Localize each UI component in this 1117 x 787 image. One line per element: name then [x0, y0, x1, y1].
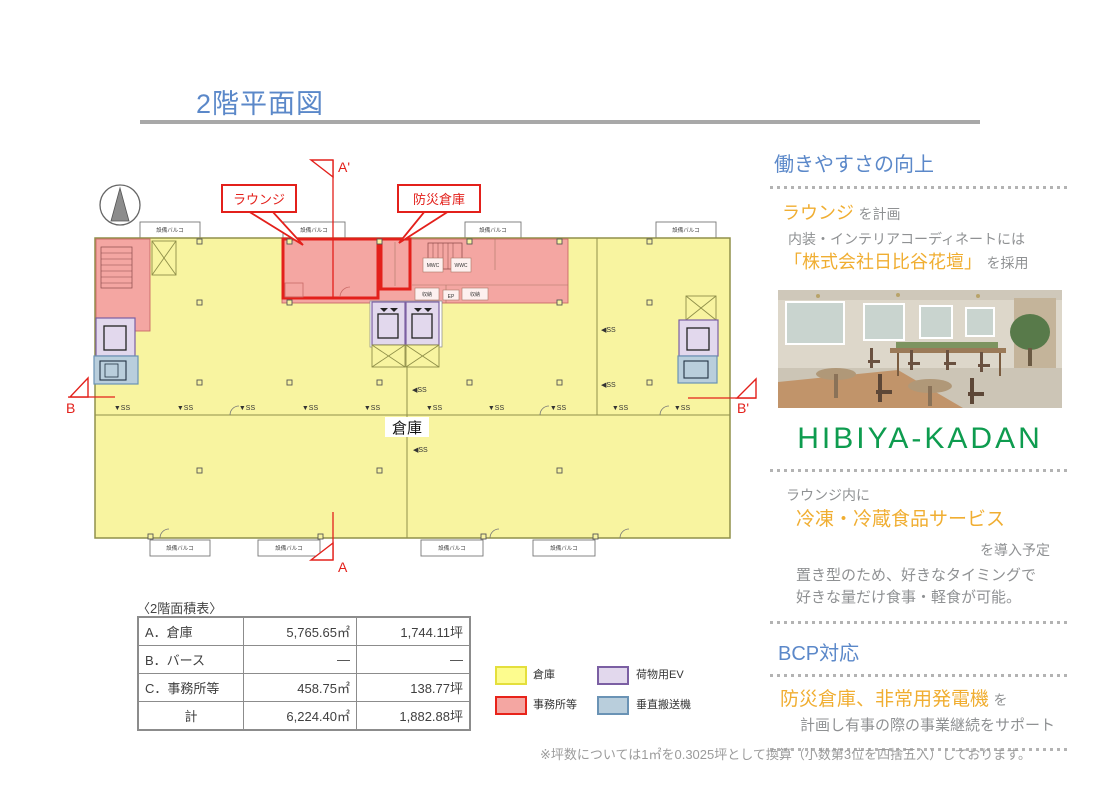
slide-page: 2階平面図 設備バルコ 設備バルコ 設備バルコ 設備バルコ	[0, 0, 1117, 787]
svg-text:▼SS: ▼SS	[488, 405, 505, 412]
tsubo-footnote: ※坪数については1㎡を0.3025坪として換算（小数第3位を四捨五入）しておりま…	[540, 744, 1080, 763]
legend-label: 荷物用EV	[636, 666, 684, 685]
svg-text:◀SS: ◀SS	[601, 327, 616, 334]
svg-text:▼SS: ▼SS	[302, 405, 319, 412]
bcp-line1: 防災倉庫、非常用発電機 を	[780, 687, 1070, 713]
legend-swatch-warehouse	[495, 666, 527, 685]
service-desc-line2: 好きな量だけ食事・軽食が可能。	[796, 588, 1070, 608]
service-desc-line1: 置き型のため、好きなタイミングで	[796, 566, 1070, 586]
hibiya-kadan-logo: HIBIYA-KADAN	[778, 422, 1062, 456]
svg-text:▼SS: ▼SS	[239, 405, 256, 412]
svg-text:収納: 収納	[470, 291, 480, 298]
legend-label: 事務所等	[533, 696, 577, 715]
svg-text:設備バルコ: 設備バルコ	[156, 226, 183, 234]
sidebar: 働きやすさの向上 ラウンジ を計画 内装・インテリアコーディネートには 「株式会…	[770, 148, 1070, 751]
section-marker-b: B	[66, 400, 75, 416]
svg-text:設備バルコ: 設備バルコ	[166, 544, 193, 552]
svg-text:▼SS: ▼SS	[114, 405, 131, 412]
lounge-photo	[778, 290, 1062, 408]
lounge-plan-line: ラウンジ を計画	[782, 201, 1070, 226]
svg-text:▼SS: ▼SS	[177, 405, 194, 412]
introduce-plan-line: を導入予定	[770, 541, 1050, 560]
svg-text:倉庫: 倉庫	[392, 420, 422, 437]
cargo-elevators-center	[370, 301, 442, 347]
warehouse-label: 倉庫	[385, 417, 429, 437]
svg-text:EP: EP	[448, 294, 455, 300]
table-row: C．事務所等 458.75㎡ 138.77坪	[138, 674, 470, 702]
svg-text:◀SS: ◀SS	[601, 382, 616, 389]
legend-swatch-ev	[597, 666, 629, 685]
balcony-labels-top: 設備バルコ 設備バルコ 設備バルコ 設備バルコ	[156, 226, 699, 234]
svg-text:設備バルコ: 設備バルコ	[300, 226, 327, 234]
hibiya-adoption-line: 「株式会社日比谷花壇」 を採用	[784, 250, 1070, 275]
north-compass-icon	[100, 185, 140, 225]
svg-text:設備バルコ: 設備バルコ	[672, 226, 699, 234]
hatch-box-topleft	[152, 241, 176, 275]
interior-line: 内装・インテリアコーディネートには	[788, 230, 1070, 249]
bcp-line2: 計画し有事の際の事業継続をサポート	[800, 716, 1070, 736]
svg-text:MWC: MWC	[427, 263, 440, 269]
section-marker-a-prime: A'	[338, 159, 350, 175]
area-table: A．倉庫 5,765.65㎡ 1,744.11坪 B．バース ― ― C．事務所…	[137, 616, 471, 731]
dotted-separator	[770, 621, 1070, 624]
balcony-boxes-bottom	[150, 540, 595, 556]
vertical-conveyor-right	[678, 356, 717, 383]
food-service-highlight: 冷凍・冷蔵食品サービス	[796, 507, 1070, 533]
vertical-conveyor-left	[94, 356, 138, 384]
sidebar-heading-bcp: BCP対応	[778, 637, 1070, 666]
svg-text:収納: 収納	[422, 291, 432, 298]
title-underline	[140, 120, 980, 124]
page-title: 2階平面図	[196, 82, 324, 121]
svg-text:◀SS: ◀SS	[412, 387, 427, 394]
svg-text:設備バルコ: 設備バルコ	[275, 544, 302, 552]
disaster-storage-room	[381, 239, 410, 289]
legend-swatch-conveyor	[597, 696, 629, 715]
svg-text:設備バルコ: 設備バルコ	[438, 544, 465, 552]
stairwell-block	[96, 239, 150, 331]
svg-text:設備バルコ: 設備バルコ	[479, 226, 506, 234]
table-row-total: 計 6,224.40㎡ 1,882.88坪	[138, 702, 470, 731]
dotted-separator	[770, 469, 1070, 472]
legend-swatch-office	[495, 696, 527, 715]
cargo-elevator-left	[96, 318, 135, 356]
svg-text:設備バルコ: 設備バルコ	[550, 544, 577, 552]
svg-text:▼SS: ▼SS	[426, 405, 443, 412]
svg-text:防災倉庫: 防災倉庫	[413, 192, 465, 207]
lounge-callout: ラウンジ	[222, 185, 303, 245]
section-marker-a: A	[338, 559, 348, 575]
lounge-service-line1: ラウンジ内に	[786, 486, 1070, 505]
svg-text:◀SS: ◀SS	[413, 447, 428, 454]
svg-text:WWC: WWC	[454, 263, 467, 269]
lounge-room	[283, 239, 378, 298]
svg-text:▼SS: ▼SS	[612, 405, 629, 412]
table-row: A．倉庫 5,765.65㎡ 1,744.11坪	[138, 617, 470, 646]
table-row: B．バース ― ―	[138, 646, 470, 674]
dotted-separator	[770, 674, 1070, 677]
sidebar-heading-comfort: 働きやすさの向上	[774, 148, 1070, 177]
cargo-elevator-right	[679, 320, 718, 356]
area-table-caption: 〈2階面積表〉	[137, 598, 222, 617]
hatch-box-right	[686, 296, 716, 320]
legend-label: 倉庫	[533, 666, 555, 685]
svg-text:▼SS: ▼SS	[674, 405, 691, 412]
balcony-labels-bottom: 設備バルコ 設備バルコ 設備バルコ 設備バルコ	[166, 544, 577, 552]
svg-text:▼SS: ▼SS	[364, 405, 381, 412]
svg-text:ラウンジ: ラウンジ	[233, 192, 285, 207]
legend-label: 垂直搬送機	[636, 696, 691, 715]
section-marker-b-prime: B'	[737, 400, 749, 416]
floor-plan: 設備バルコ 設備バルコ 設備バルコ 設備バルコ	[60, 148, 770, 588]
dotted-separator	[770, 186, 1070, 189]
svg-text:▼SS: ▼SS	[550, 405, 567, 412]
